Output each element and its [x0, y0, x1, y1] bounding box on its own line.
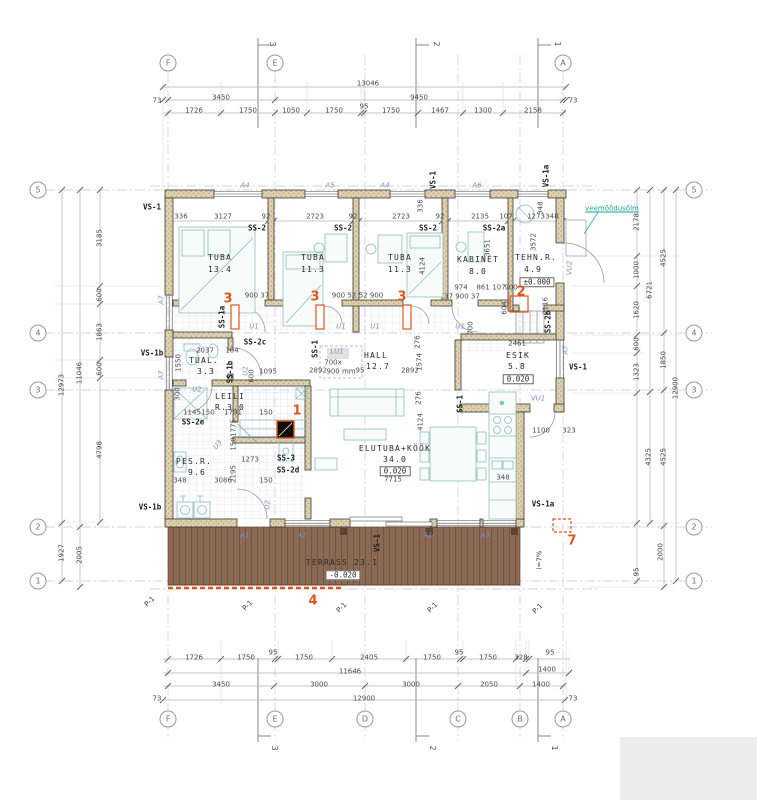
text-label: 1 — [550, 745, 558, 750]
room-area-tehnr: 4.9 — [524, 266, 542, 274]
text-label: 4525 — [661, 249, 668, 267]
text-label: A5 — [325, 183, 334, 190]
text-label: 1750 — [237, 655, 255, 662]
text-label: 4325 — [646, 448, 653, 466]
text-label: 107 — [499, 214, 512, 221]
text-label: 1863 — [97, 323, 104, 341]
text-label: 1100 — [532, 428, 550, 435]
text-label: 3450 — [212, 682, 230, 689]
text-label: 276 — [415, 335, 422, 348]
text-label: 95 — [546, 650, 555, 657]
text-label: U2 — [243, 366, 250, 376]
text-label: VU2 — [567, 261, 574, 275]
marker-1: 1 — [292, 405, 301, 418]
grid-bubble-2: 2 — [686, 519, 703, 536]
text-label: 348 — [538, 201, 545, 214]
text-label: SS-2 — [419, 224, 437, 232]
text-label: 13046 — [357, 81, 379, 88]
text-label: 700 — [468, 321, 475, 334]
grid-bubble-5: 5 — [686, 182, 703, 199]
text-label: 336 — [174, 214, 187, 221]
text-label: P-1 — [532, 603, 545, 616]
text-label: 150 — [259, 410, 272, 417]
room-label-tuba-1: TUBA — [208, 254, 232, 262]
text-label: 95 — [455, 650, 464, 657]
text-label: 2050 — [480, 682, 498, 689]
text-label: 700x — [324, 360, 342, 367]
text-label: 11046 — [77, 362, 84, 384]
room-area-hall: 12.7 — [366, 363, 390, 371]
text-label: 600 — [634, 337, 641, 350]
text-label: 3127 — [214, 214, 232, 221]
text-label: 1726 — [185, 655, 203, 662]
text-label: 1750 — [382, 108, 400, 115]
text-label: A7 — [159, 295, 166, 304]
text-label: VS-1 — [429, 171, 437, 189]
text-label: 1750 — [325, 108, 343, 115]
bottom-right-patch — [620, 737, 757, 800]
room-area-elutuba: 34.0 — [383, 456, 407, 464]
grid-bubble-A: A — [555, 711, 572, 728]
room-area-tual: 3.3 — [197, 368, 215, 376]
text-label: 974 — [454, 285, 467, 292]
text-label: 2405 — [360, 655, 378, 662]
section-mark-1: 1 — [553, 41, 561, 46]
grid-bubble-4: 4 — [30, 325, 47, 342]
text-label: 2892 — [309, 368, 327, 375]
text-label: SS-1 — [311, 340, 319, 358]
text-label: 600 — [97, 288, 104, 301]
text-label: VS-1b — [141, 349, 164, 357]
text-label: 2461 — [508, 341, 526, 348]
text-label: SS-1a — [218, 306, 226, 329]
text-label: U3 — [212, 439, 224, 451]
text-label: SS-3 — [277, 454, 295, 462]
room-label-tuba-2: TUBA — [301, 254, 325, 262]
text-label: P-1 — [242, 600, 255, 613]
text-label: 300 — [175, 387, 182, 400]
grid-bubble-F: F — [160, 55, 177, 72]
text-label: 600 — [249, 369, 256, 382]
marker-2: 2 — [516, 286, 525, 299]
marker-3b: 3 — [310, 291, 319, 304]
text-label: 104 — [225, 348, 238, 355]
text-label: i=7% — [537, 551, 544, 570]
text-label: U1 — [249, 324, 259, 331]
text-label: 1550 — [176, 354, 183, 372]
room-label-kabinet: KABINET — [457, 256, 499, 264]
text-label: U2 — [192, 387, 202, 394]
room-label-terrass: TERRASS 23.1 — [306, 559, 378, 567]
grid-bubble-3: 3 — [686, 382, 703, 399]
room-area-tuba-2: 11.3 — [301, 266, 325, 274]
text-label: P-1 — [427, 602, 440, 615]
text-label: 150 — [259, 478, 272, 485]
text-label: 1850 — [661, 351, 668, 369]
grid-bubble-1: 1 — [686, 573, 703, 590]
text-label: 12900 — [353, 696, 375, 703]
text-label: 37 900 37 — [444, 294, 480, 301]
room-label-leili: LEILI — [215, 393, 245, 401]
text-label: SS-1b — [226, 361, 234, 384]
text-label: 9450 — [410, 95, 428, 102]
text-label: VS-1a — [532, 500, 555, 508]
room-area-leili: R.3.0 — [215, 404, 245, 412]
text-label: SS-2 — [248, 224, 266, 232]
text-label: 1000 — [634, 261, 641, 279]
grid-bubble-D: D — [357, 711, 374, 728]
section-mark-3: 3 — [268, 41, 276, 46]
text-label: 95 — [269, 650, 278, 657]
text-label: 2723 — [392, 214, 410, 221]
text-label: U1 — [370, 324, 380, 331]
text-label: SS-2 — [334, 224, 352, 232]
text-label: 900 37 — [245, 293, 270, 300]
text-label: 52 900 — [359, 293, 384, 300]
text-label: 2178 — [634, 213, 641, 231]
level-esik: 0.020 — [503, 374, 534, 384]
text-label: 4124 — [418, 413, 425, 431]
grid-bubble-2: 2 — [30, 519, 47, 536]
text-label: SS-2a — [483, 224, 506, 232]
text-label: 11646 — [339, 669, 361, 676]
text-label: 73 — [569, 696, 578, 703]
text-label: A6 — [472, 183, 481, 190]
text-label: 3572 — [531, 233, 538, 251]
text-label: 348 — [496, 475, 509, 482]
grid-bubble-1: 1 — [30, 573, 47, 590]
text-label: 1574 — [417, 353, 424, 371]
text-label: 3000 — [310, 682, 328, 689]
text-label: A1 — [423, 533, 432, 540]
text-label: 92 — [262, 214, 271, 221]
grid-bubble-B: B — [512, 711, 529, 728]
text-label: 861 — [476, 285, 489, 292]
text-label: 276 — [416, 391, 423, 404]
text-label: 323 — [562, 428, 575, 435]
room-label-tual: TUAL. — [189, 357, 219, 365]
text-label: SS-2e — [182, 418, 205, 426]
text-label: 92 — [436, 214, 445, 221]
text-label: 73 — [569, 98, 578, 105]
text-label: 1750 — [479, 655, 497, 662]
text-label: 7715 — [384, 477, 402, 484]
marker-3a: 3 — [223, 293, 232, 306]
text-label: VS-1 — [373, 534, 381, 552]
text-label: 2158 — [524, 108, 542, 115]
text-label: 150 — [231, 437, 238, 450]
text-label: 1750 — [295, 655, 313, 662]
text-label: VS-1 — [569, 363, 587, 371]
floor-plan-canvas: 1304673345094507317261750105017509517501… — [0, 0, 757, 800]
text-label: 1323 — [634, 363, 641, 381]
text-label: 1095 — [259, 369, 277, 376]
room-label-tehnr: TEHN.R. — [515, 254, 557, 262]
text-label: VU1 — [531, 396, 545, 403]
room-area-tuba-1: 13.4 — [208, 266, 232, 274]
text-label: 1050 — [282, 108, 300, 115]
text-label: A1 — [240, 533, 249, 540]
text-label: 1400 — [538, 667, 556, 674]
labels-layer: 1304673345094507317261750105017509517501… — [0, 0, 757, 800]
text-label: SS-1 — [456, 395, 464, 413]
text-label: A7 — [159, 370, 166, 379]
text-label: 348 — [545, 214, 558, 221]
level-elutuba: 0.020 — [380, 466, 411, 476]
marker-3c: 3 — [397, 291, 406, 304]
text-label: A4 — [380, 183, 389, 190]
text-label: 95 — [634, 568, 641, 577]
grid-bubble-5: 5 — [30, 182, 47, 199]
text-label: A7 — [563, 345, 570, 354]
text-label: 2 — [428, 745, 436, 750]
text-label: 4124 — [420, 257, 427, 275]
text-label: 328 — [514, 655, 527, 662]
text-label: 1300 — [474, 108, 492, 115]
text-label: 1750 — [239, 108, 257, 115]
text-label: 95 — [356, 368, 365, 375]
room-label-elutuba-kook: ELUTUBA+KÖÖK — [359, 445, 431, 453]
text-label: A3 — [480, 533, 489, 540]
text-label: SS-2b — [544, 311, 552, 334]
text-label: 73 — [153, 696, 162, 703]
text-label: 3000 — [402, 682, 420, 689]
skylight-label: LU1 — [330, 349, 343, 356]
grid-bubble-4: 4 — [686, 325, 703, 342]
text-label: 1726 — [185, 108, 203, 115]
text-label: 73 — [153, 98, 162, 105]
text-label: VS-1a — [542, 165, 550, 188]
text-label: SS-2d — [277, 466, 300, 474]
text-label: VS-1 — [143, 203, 161, 211]
text-label: 1775 — [231, 419, 238, 437]
text-label: P-1 — [336, 602, 349, 615]
room-area-tuba-3: 11.3 — [388, 266, 412, 274]
grid-bubble-C: C — [450, 711, 467, 728]
room-label-pesr: PES.R. — [176, 458, 212, 466]
room-area-kabinet: 8.0 — [469, 268, 487, 276]
room-area-esik: 5.8 — [508, 363, 526, 371]
grid-bubble-3: 3 — [30, 382, 47, 399]
fridge-icon: ❄ — [499, 401, 505, 408]
text-label: 2135 — [471, 214, 489, 221]
text-label: 1273 — [241, 457, 259, 464]
text-label: 3185 — [97, 229, 104, 247]
grid-bubble-E: E — [267, 711, 284, 728]
text-label: 1620 — [634, 301, 641, 319]
text-label: 3450 — [212, 95, 230, 102]
text-label: U2 — [265, 500, 272, 510]
text-label: 1400 — [532, 682, 550, 689]
text-label: 12900 — [673, 377, 680, 399]
text-label: 900 mm — [326, 369, 355, 376]
room-label-esik: ESIK — [506, 352, 530, 360]
marker-7: 7 — [567, 535, 576, 548]
text-label: U1 — [336, 324, 346, 331]
text-label: 95 — [360, 104, 369, 111]
text-label: 150 — [201, 410, 214, 417]
text-label: 3 — [270, 745, 278, 750]
text-label: 2037 — [196, 348, 214, 355]
text-label: 2195 — [231, 465, 238, 483]
text-label: 92 — [349, 214, 358, 221]
grid-bubble-A: A — [555, 55, 572, 72]
level-terrass: -0.020 — [325, 570, 360, 580]
text-label: 1927 — [59, 544, 66, 562]
text-label: 600 — [97, 362, 104, 375]
text-label: U1 — [455, 324, 465, 331]
text-label: 336 — [418, 199, 425, 212]
grid-bubble-E: E — [267, 55, 284, 72]
text-label: 2000 — [658, 543, 665, 561]
marker-4: 4 — [308, 595, 317, 608]
text-label: SS-2c — [244, 338, 267, 346]
section-mark-2: 2 — [432, 41, 440, 46]
text-label: VS-1b — [139, 503, 162, 511]
text-label: 12973 — [59, 374, 66, 396]
room-label-hall: HALL — [364, 352, 388, 360]
text-label: 1145 — [183, 410, 201, 417]
text-label: A4 — [240, 183, 249, 190]
text-label: P-1 — [144, 596, 157, 609]
text-label: 1467 — [431, 108, 449, 115]
text-label: 4798 — [97, 441, 104, 459]
text-label: 4525 — [661, 448, 668, 466]
room-label-tuba-3: TUBA — [388, 254, 412, 262]
text-label: 604 — [502, 301, 509, 314]
text-label: A2 — [297, 533, 306, 540]
text-label: 900 52 — [332, 293, 357, 300]
room-area-pesr: 9.6 — [188, 469, 206, 477]
text-label: 2723 — [306, 214, 324, 221]
text-label: 6721 — [647, 281, 654, 299]
water-meter-note: veemõõdusõlm — [585, 206, 639, 213]
grid-bubble-F: F — [160, 711, 177, 728]
text-label: 2005 — [77, 546, 84, 564]
text-label: 348 — [173, 478, 186, 485]
text-label: 1750 — [423, 655, 441, 662]
